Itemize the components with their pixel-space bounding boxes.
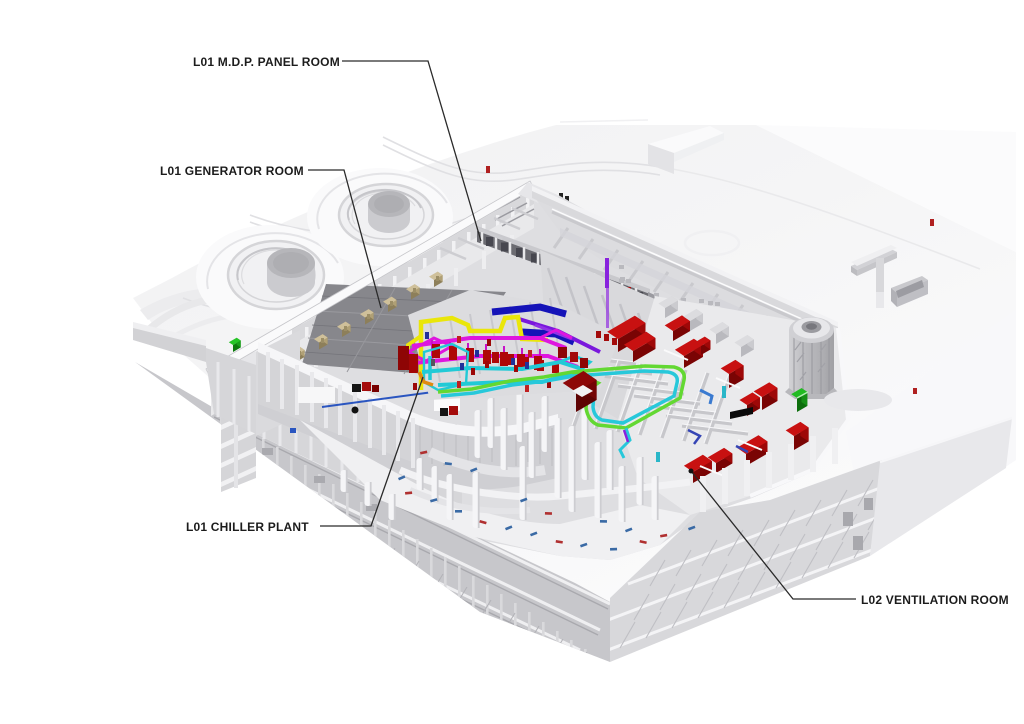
svg-text:L01 M.D.P. PANEL ROOM: L01 M.D.P. PANEL ROOM (193, 55, 340, 69)
svg-text:L01 GENERATOR ROOM: L01 GENERATOR ROOM (160, 164, 304, 178)
svg-text:L01 CHILLER PLANT: L01 CHILLER PLANT (186, 520, 309, 534)
svg-text:L02 VENTILATION ROOM: L02 VENTILATION ROOM (861, 593, 1009, 607)
